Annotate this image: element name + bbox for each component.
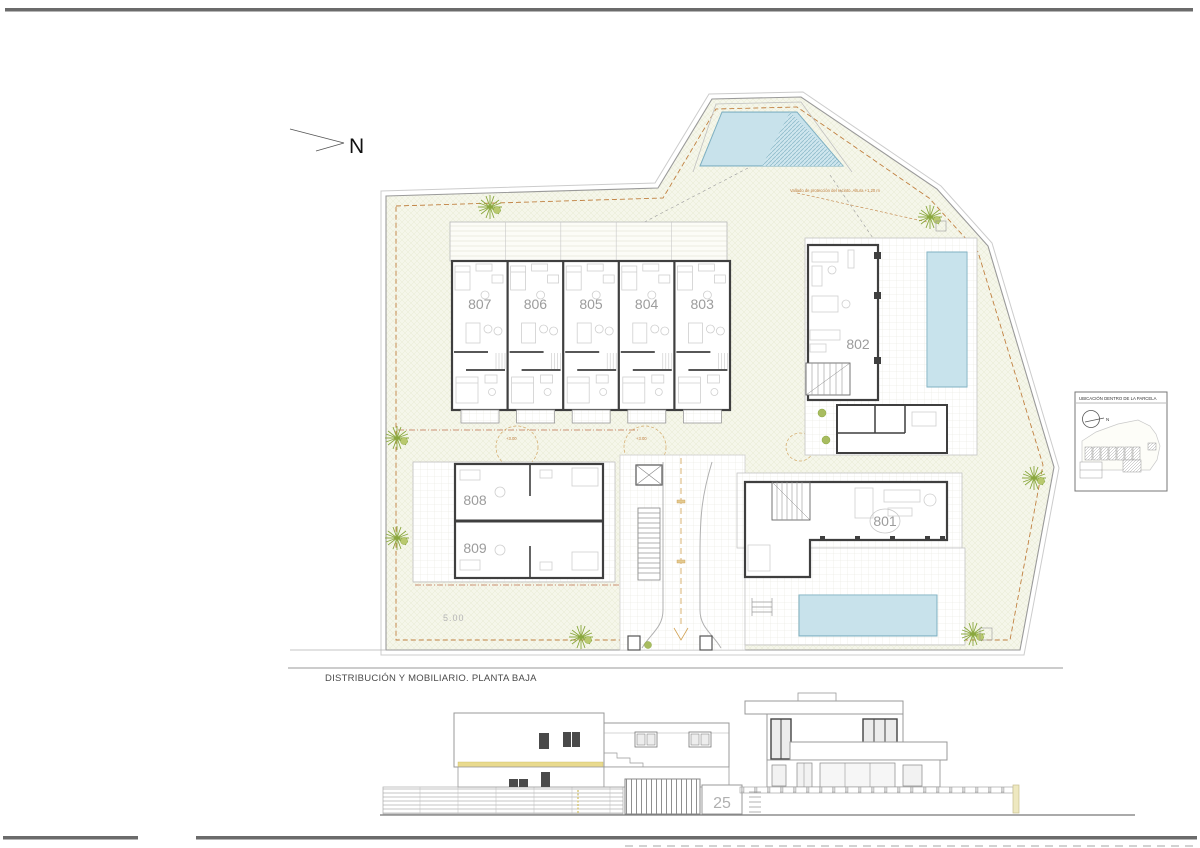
villa-802-pool [927,252,967,387]
north-arrow: N [290,129,364,158]
upper-floor [454,713,604,767]
top-border-line [5,8,1193,12]
unit-806-label: 806 [524,296,548,312]
end-post [1013,785,1019,813]
unit-801-label: 801 [873,513,897,529]
unit-808-label: 808 [463,492,487,508]
north-label: N [349,135,364,158]
location-inset: UBICACIÓN DENTRO DE LA PARCELA N [1075,392,1167,491]
slat-fence [383,787,623,814]
unit-809-label: 809 [463,540,487,556]
elevation-left-building: 25 [383,713,742,814]
north-arrow-lines [290,129,344,151]
mid-slab [790,742,947,760]
townhouse-terrace [450,222,727,261]
villa-802-annex [837,405,947,453]
level-mark-1: +3.00 [506,436,517,441]
lower-floor [458,767,604,787]
roof-box [798,693,836,701]
roof-slab [745,701,903,714]
central-driveway [620,455,745,650]
unit-807-label: 807 [468,296,492,312]
drawing-caption: DISTRIBUCIÓN Y MOBILIARIO. PLANTA BAJA [325,673,537,684]
elevations: 25 [380,693,1135,815]
site-plan: Vallado de protección del recinto. Altur… [290,92,1059,655]
inset-north-label: N [1106,417,1109,422]
unit-803-label: 803 [691,296,715,312]
house-number: 25 [713,795,731,812]
inset-title: UBICACIÓN DENTRO DE LA PARCELA [1079,396,1157,401]
driveway-planter [636,465,662,485]
low-fence-wall [740,787,1013,793]
side-steps [749,792,761,812]
yellow-band [458,762,603,767]
unit-805-label: 805 [579,296,603,312]
entrance-gate [625,779,700,814]
sheet-canvas: N Vallado de protección del recinto. Alt… [0,0,1200,848]
drawing-sheet: N Vallado de protección del recinto. Alt… [0,0,1200,848]
bottom-border-line-right [196,836,1197,840]
villa-801-pool [799,595,937,636]
elevation-right-villa [740,693,1019,813]
caption-block: DISTRIBUCIÓN Y MOBILIARIO. PLANTA BAJA [288,668,1063,684]
bottom-border-line-left [3,836,138,840]
villa-801: 801 [737,473,965,645]
villa-802: 802 [805,238,977,455]
villa-802-stairs [806,363,850,395]
duplex-block: 808 809 [413,462,615,582]
level-mark-2: +3.00 [636,436,647,441]
fence-note: Vallado de protección del recinto. Altur… [790,188,880,193]
unit-804-label: 804 [635,296,659,312]
dimension-5m: 5.00 [443,613,465,623]
driveway-stairs [638,508,660,580]
unit-802-label: 802 [846,336,870,352]
townhouse-block: 807 806 805 804 803 [452,261,730,423]
